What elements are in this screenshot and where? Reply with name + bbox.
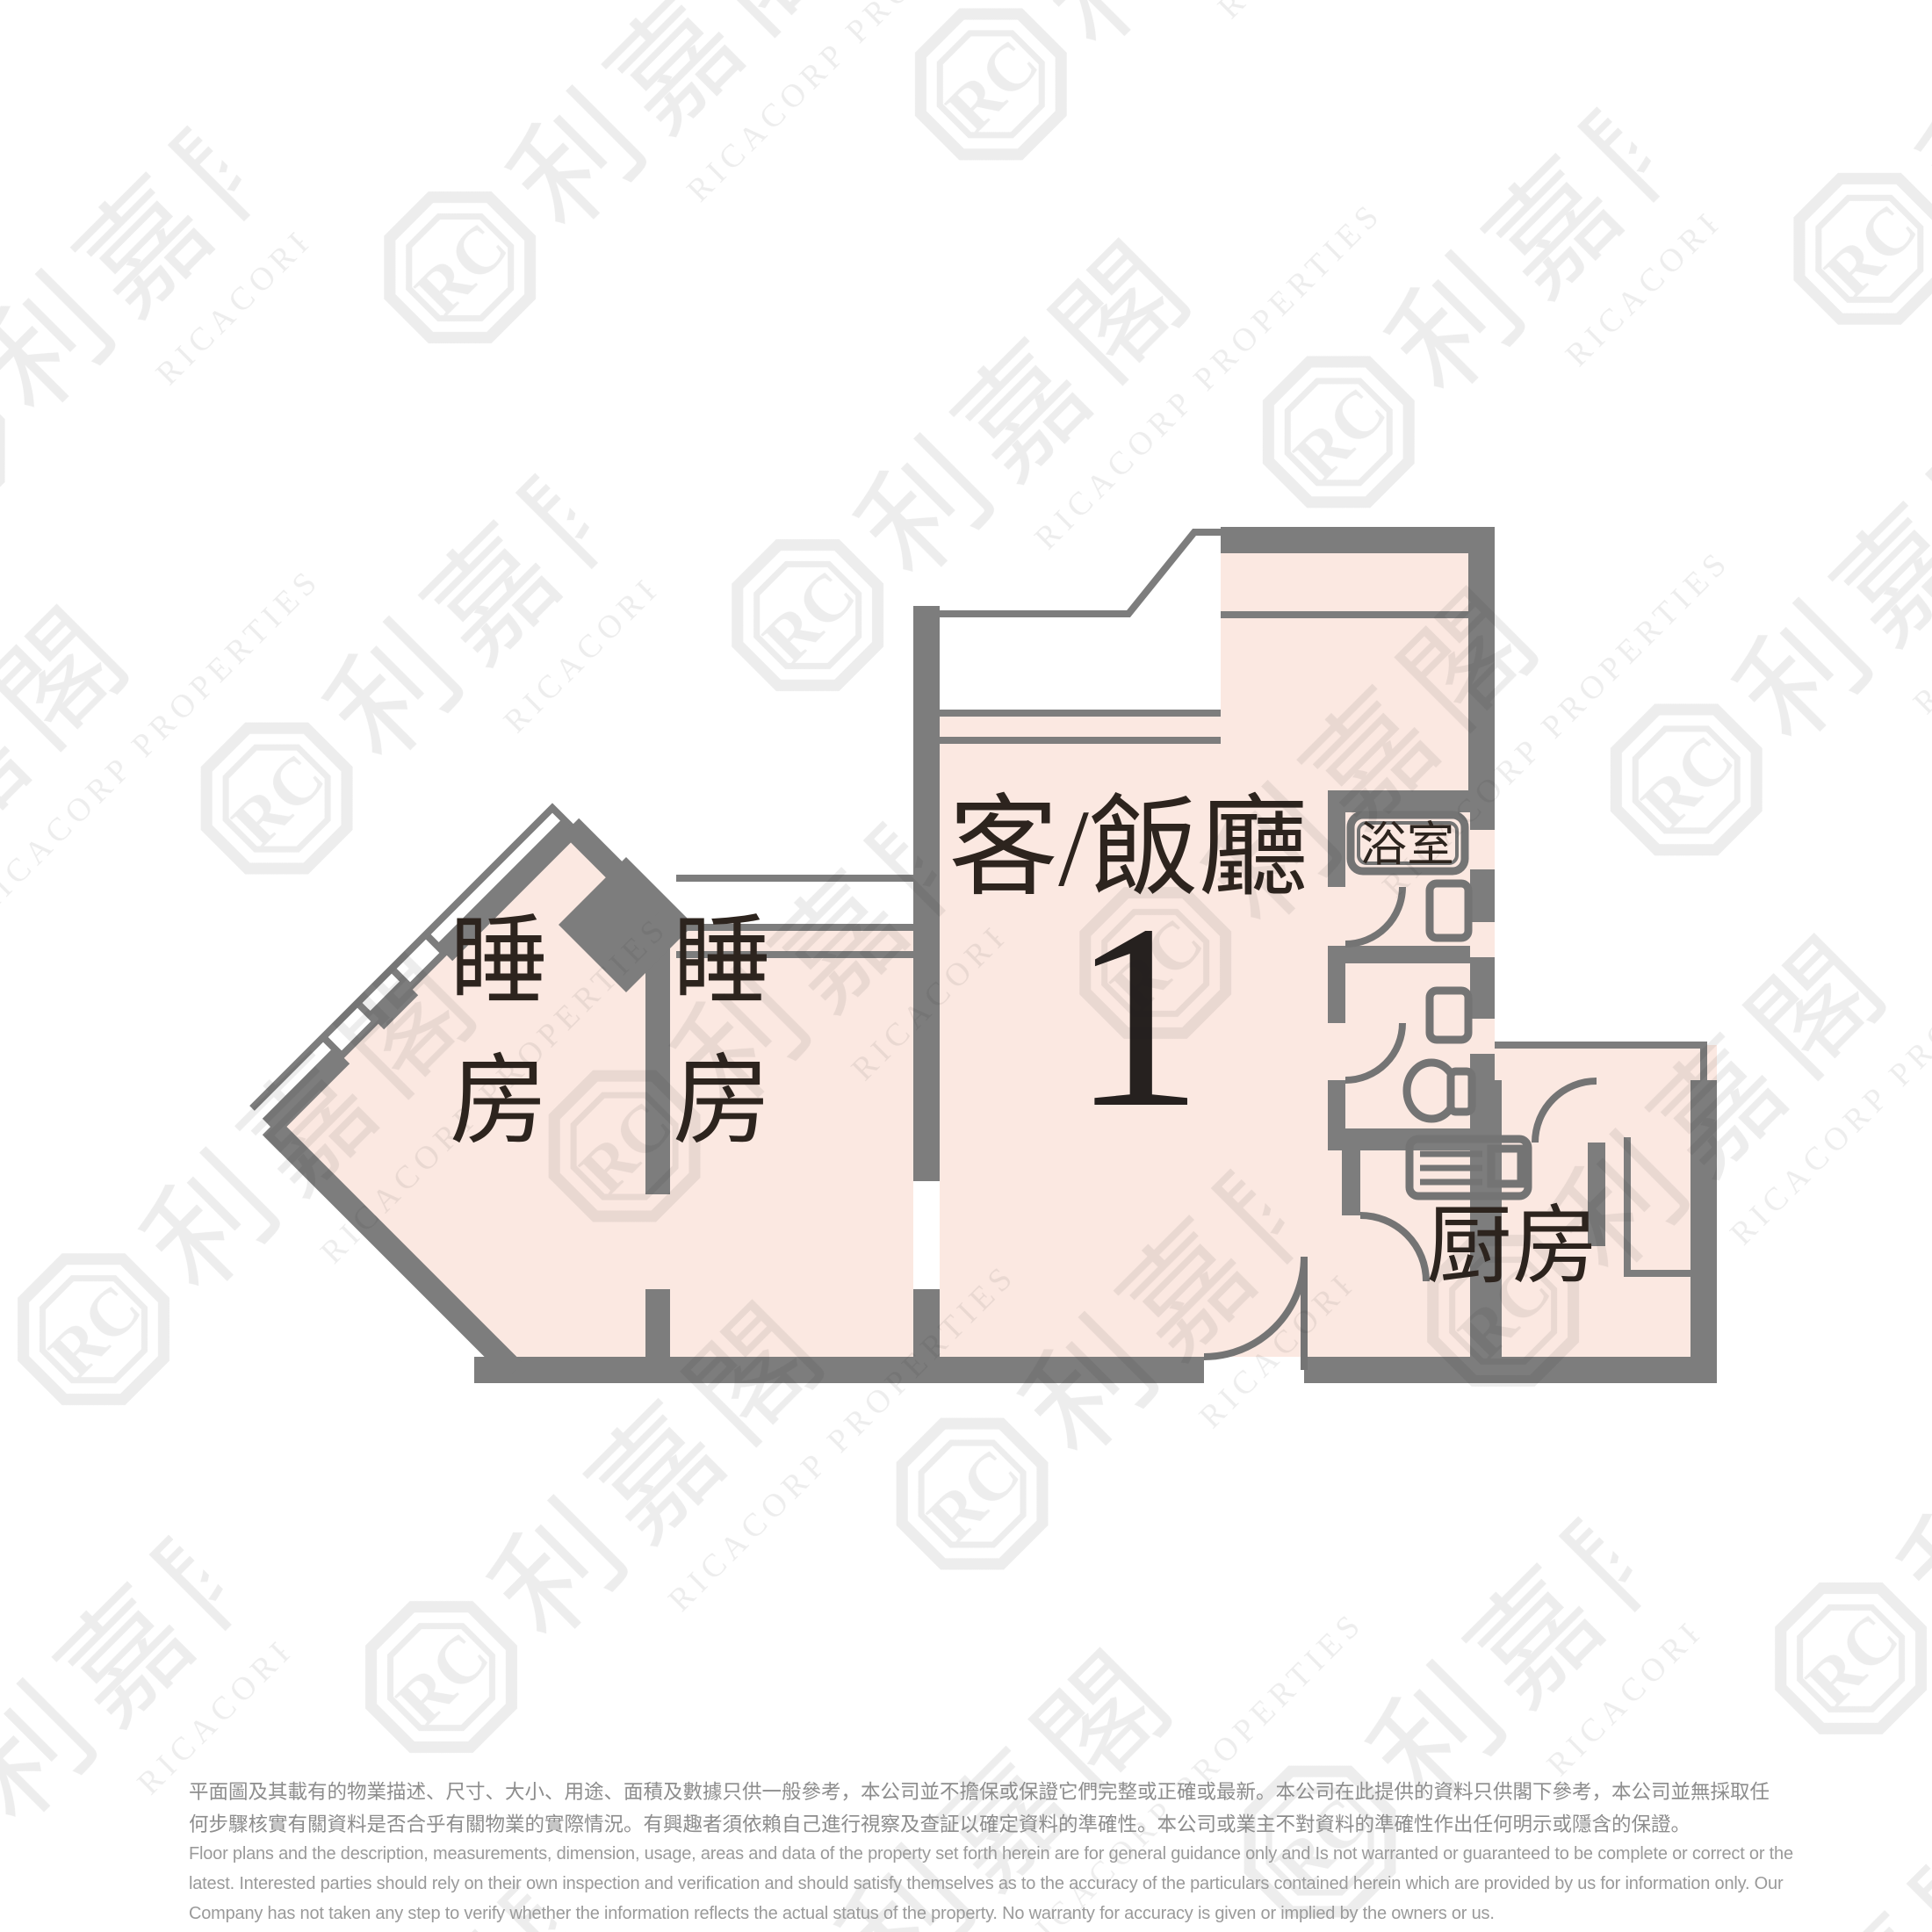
floor-plan-page: 客/飯廳 1 睡 房 睡 房 浴室 厨房 RC 利嘉閣 RICACORP PRO… xyxy=(0,0,1932,1932)
disclaimer-en-line3: Company has not taken any step to verify… xyxy=(189,1904,1495,1924)
disclaimer-en-line1: Floor plans and the description, measure… xyxy=(189,1844,1793,1864)
disclaimer-zh-line1: 平面圖及其載有的物業描述、尺寸、大小、用途、面積及數據只供一般參考，本公司並不擔… xyxy=(189,1777,1770,1805)
floor-plan-drawing: 客/飯廳 1 睡 房 睡 房 浴室 厨房 RC 利嘉閣 RICACORP PRO… xyxy=(0,0,1932,1932)
disclaimer-en-line2: latest. Interested parties should rely o… xyxy=(189,1874,1783,1894)
watermark-layer xyxy=(0,0,1932,1932)
disclaimer-zh-line2: 何步驟核實有關資料是否合乎有關物業的實際情況。有興趣者須依賴自己進行視察及查証以… xyxy=(189,1809,1690,1837)
